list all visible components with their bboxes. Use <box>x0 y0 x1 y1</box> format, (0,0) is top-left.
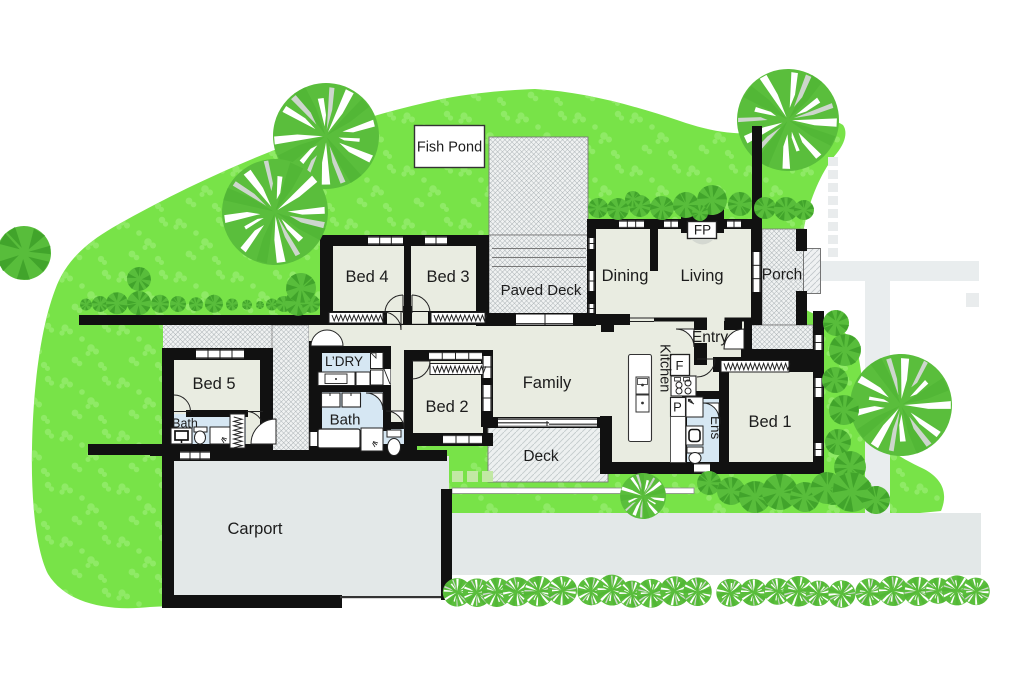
svg-text:Bed 5: Bed 5 <box>192 375 235 393</box>
svg-text:Family: Family <box>523 374 572 392</box>
svg-text:FP: FP <box>694 223 711 238</box>
svg-text:Porch: Porch <box>762 267 803 284</box>
svg-text:Dining: Dining <box>602 267 649 285</box>
svg-text:Bed 1: Bed 1 <box>748 413 791 431</box>
svg-text:Entry: Entry <box>692 329 728 346</box>
svg-text:Ens: Ens <box>708 416 723 440</box>
svg-text:Kitchen: Kitchen <box>657 344 673 392</box>
svg-text:Bed 2: Bed 2 <box>425 398 468 416</box>
svg-text:Living: Living <box>680 267 723 285</box>
svg-text:Bath: Bath <box>330 412 361 429</box>
svg-text:F: F <box>676 358 684 373</box>
svg-text:Bath: Bath <box>172 417 198 431</box>
svg-text:Carport: Carport <box>227 520 282 538</box>
svg-text:Bed 3: Bed 3 <box>426 268 469 286</box>
svg-text:L’DRY: L’DRY <box>325 354 363 369</box>
svg-text:Paved Deck: Paved Deck <box>501 282 582 299</box>
svg-text:Bed 4: Bed 4 <box>345 268 388 286</box>
svg-text:Deck: Deck <box>523 448 559 465</box>
svg-text:P: P <box>673 400 682 415</box>
svg-text:Fish Pond: Fish Pond <box>417 140 482 156</box>
